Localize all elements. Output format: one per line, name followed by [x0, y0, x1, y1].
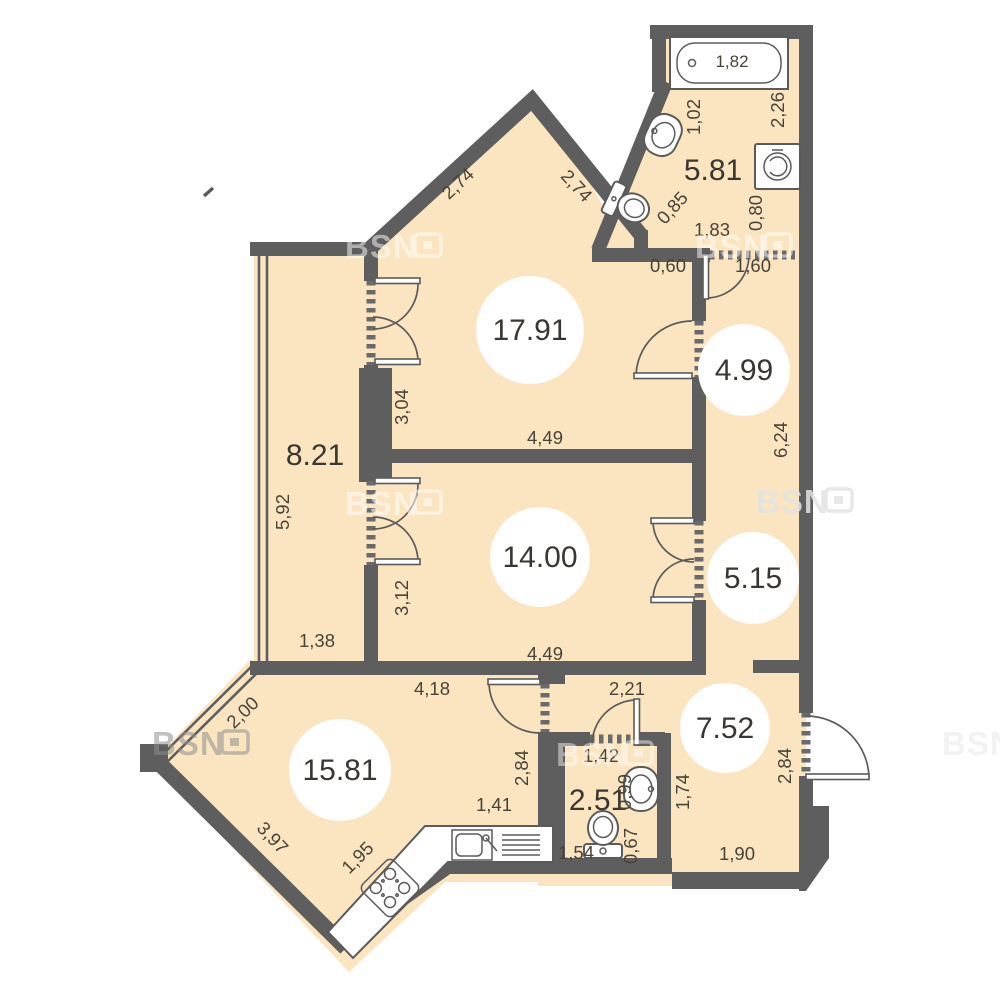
watermark-logo-dot — [634, 749, 643, 757]
wall-wc-left-top — [538, 674, 565, 684]
dim-bath-right: 2,26 — [767, 92, 788, 128]
wall-left-pier — [359, 368, 392, 482]
dim-balcony-bottom: 1,38 — [299, 630, 335, 651]
watermark-text: BSN — [756, 483, 829, 520]
entry-door-leaf — [806, 774, 869, 780]
watermark-text: BSN — [345, 228, 418, 265]
hallway-area: 7.52 — [696, 712, 754, 745]
kitchen-door-leaf — [488, 679, 540, 685]
floor-plan-page: 17.91 14.00 4.99 5.15 7.52 15.81 8.21 5.… — [0, 0, 1000, 1000]
bathroom-area: 5.81 — [684, 154, 742, 187]
dim-bath-left: 1,02 — [683, 99, 704, 135]
dim-hall-top-seg: 0,60 — [650, 255, 686, 276]
dim-living-bottom: 4,49 — [527, 427, 563, 448]
dim-living-left: 3,04 — [391, 389, 412, 425]
wall-hallway-bottom — [672, 872, 806, 889]
watermark-logo-dot — [230, 738, 239, 746]
balcony-area: 8.21 — [286, 439, 344, 472]
dim-wc-toilet: 0,67 — [620, 828, 641, 864]
hall-top-area: 4.99 — [715, 354, 773, 387]
dim-kitchen-wall-right: 2,84 — [511, 750, 532, 786]
watermark-logo-dot — [423, 241, 432, 249]
balcony-lower-leaf-bottom — [375, 559, 420, 565]
watermark-text: BSN — [345, 485, 418, 522]
dim-lobby-top: 2,21 — [609, 678, 645, 699]
living-door-leaf — [634, 373, 692, 379]
watermark-logo-dot — [423, 498, 432, 506]
washing-machine-icon — [755, 144, 800, 189]
bedroom-door-leaf-top — [651, 518, 694, 524]
dim-bedroom-left: 3,12 — [391, 580, 412, 616]
wc-door-leaf — [634, 699, 640, 745]
dim-balcony-left: 5,92 — [272, 494, 293, 530]
floor-plan: 17.91 14.00 4.99 5.15 7.52 15.81 8.21 5.… — [0, 0, 1000, 1000]
kitchen-living-area: 15.81 — [302, 754, 377, 787]
dim-wc-right: 1,74 — [672, 774, 693, 810]
living-room-area: 17.91 — [492, 314, 567, 347]
dim-counter-top: 1,41 — [476, 794, 512, 815]
watermark-text: BSN — [942, 725, 1000, 762]
dim-hallway-bottom: 1,90 — [719, 843, 755, 864]
balcony-upper-leaf-top — [375, 278, 420, 284]
watermark-text: BSN — [152, 725, 225, 762]
bedroom-area: 14.00 — [502, 541, 577, 574]
hall-mid-area: 5.15 — [724, 562, 782, 595]
watermark-text: BSN — [695, 228, 768, 265]
dim-bath-right-lower: 0,80 — [745, 195, 766, 231]
dim-bedroom-bottom: 4,49 — [527, 643, 563, 664]
dim-corridor-right: 6,24 — [770, 422, 791, 458]
watermark-logo-dot — [834, 496, 843, 504]
watermark-text: BSN — [556, 736, 629, 773]
dim-kitchen-top: 4,18 — [414, 678, 450, 699]
balcony-lower-leaf-top — [375, 478, 420, 484]
dim-wc-bottom: 1,54 — [558, 842, 594, 863]
dim-bathtub: 1,82 — [715, 52, 748, 71]
watermark-logo-dot — [773, 241, 782, 249]
balcony-upper-leaf-bottom — [375, 359, 420, 365]
dim-entry-right: 2,84 — [774, 748, 795, 784]
dim-wc-sink: 0,99 — [614, 774, 635, 810]
watermark: BSN — [942, 725, 1000, 762]
bedroom-door-leaf-bottom — [651, 597, 694, 603]
wall-hall-stub — [753, 660, 799, 673]
